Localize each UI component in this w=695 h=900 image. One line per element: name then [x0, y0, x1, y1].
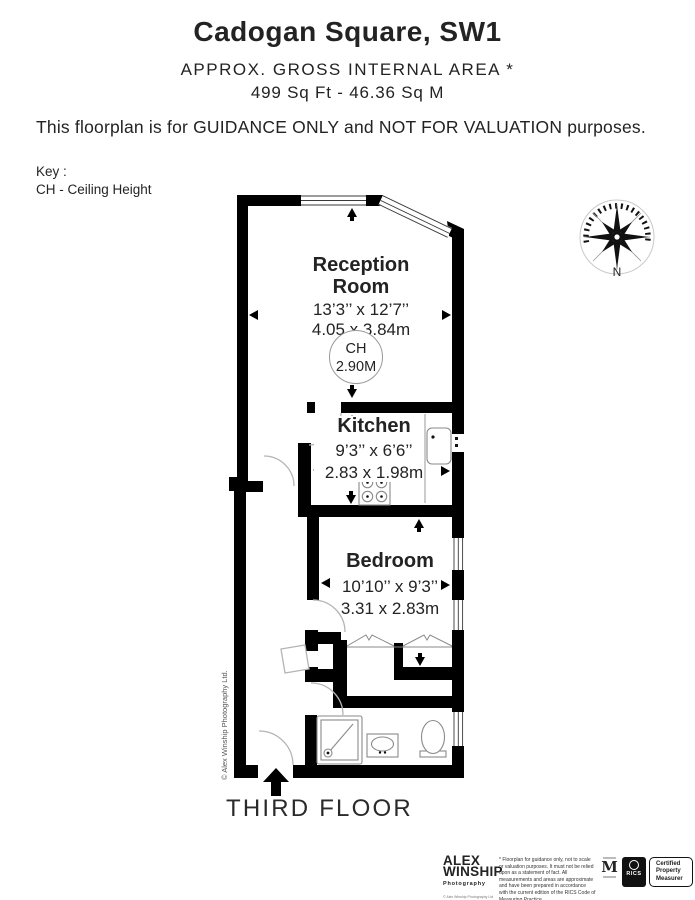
ceiling-height-circle [330, 331, 383, 384]
bedroom-dims-metric: 3.31 x 2.83m [341, 599, 439, 618]
kitchen-name: Kitchen [337, 415, 410, 437]
arrow-bedroom-up [414, 519, 424, 528]
floor-label: THIRD FLOOR [226, 795, 413, 823]
toilet [420, 721, 446, 758]
window-reception-bay [378, 195, 452, 238]
kitchen-dims-metric: 2.83 x 1.98m [325, 463, 423, 482]
footer-disclaimer: * Floorplan for guidance only, not to sc… [499, 857, 596, 900]
wall-kitchen-north [341, 402, 464, 413]
rics-label: RICS [622, 871, 646, 877]
cupboard-door-leaf [281, 645, 309, 673]
wardrobe-center-post [394, 643, 403, 680]
logo-line-2: WINSHIP [443, 866, 499, 877]
ch-value: 2.90M [336, 359, 376, 375]
rics-emblem-icon [629, 860, 639, 870]
cert-line-1: Certified [656, 861, 692, 868]
wall-left-lower [234, 491, 246, 778]
reception-dims-imperial: 13’3’’ x 12’7’’ [313, 300, 409, 319]
bedroom-dims-imperial: 10’10’’ x 9’3’’ [342, 577, 438, 596]
arrow-reception-left [249, 310, 258, 320]
entrance-arrow [263, 768, 289, 796]
wall-kitchen-south [298, 505, 464, 517]
certified-property-measurer-badge: Certified Property Measurer [649, 857, 693, 887]
ch-label: CH [346, 341, 367, 357]
arrow-reception-down [347, 389, 357, 398]
compass-rose: N [580, 200, 654, 279]
basin [367, 734, 398, 757]
window-bedroom-2 [453, 600, 464, 630]
kitchen-sink [427, 428, 451, 464]
wall-bottom [293, 765, 464, 778]
floorplan-drawing: Reception Room 13’3’’ x 12’7’’ 4.05 x 3.… [0, 0, 695, 900]
window-bathroom [453, 712, 464, 746]
window-bedroom-1 [453, 538, 464, 570]
reception-name-2: Room [333, 276, 390, 298]
arrow-reception-up [347, 208, 357, 217]
wall-bathroom-west [305, 715, 317, 778]
medallion-bottom-mark [603, 876, 616, 878]
entrance-door-arc [259, 731, 293, 765]
logo-copyright: © Alex Winship Photography Ltd [443, 892, 499, 900]
wall-bathroom-north [333, 696, 464, 708]
window-kitchen-vent [453, 434, 464, 452]
reception-name-1: Reception [313, 254, 410, 276]
wall-bedroom-south [394, 667, 464, 680]
arrow-bedroom-right [441, 580, 450, 590]
arrow-bedroom-left [321, 578, 330, 588]
rics-badge: RICS [622, 857, 646, 887]
logo-photography: Photography [443, 879, 499, 890]
wall-right-5 [452, 746, 464, 778]
vertical-watermark: © Alex Winship Photography Ltd. [220, 670, 229, 780]
floorplan-page: Cadogan Square, SW1 APPROX. GROSS INTERN… [0, 0, 695, 900]
wall-lobby-4 [313, 669, 347, 682]
wall-left-upper [237, 195, 248, 477]
arrow-kitchen-right [441, 466, 450, 476]
room-labels: Reception Room 13’3’’ x 12’7’’ 4.05 x 3.… [312, 254, 439, 618]
arrow-reception-right [442, 310, 451, 320]
arrow-bedroom-down [415, 657, 425, 666]
wall-bedroom-west [307, 517, 319, 600]
arrow-kitchen-down [346, 495, 356, 504]
wall-kitchen-north-stub [307, 402, 315, 413]
hall-door-arc [264, 456, 294, 486]
wall-hall-door-stub [246, 481, 263, 492]
cert-line-2: Property [656, 868, 692, 875]
wall-right-2 [452, 452, 464, 538]
window-reception-top [301, 195, 366, 206]
wall-bottom-corner [234, 765, 258, 778]
kitchen-dims-imperial: 9’3’’ x 6’6’’ [335, 441, 412, 460]
measurer-medallion: M [601, 856, 618, 879]
cert-line-3: Measurer [656, 876, 692, 883]
alex-winship-logo: ALEX WINSHIP Photography © Alex Winship … [443, 855, 499, 900]
medallion-m: M [601, 860, 618, 875]
wall-right-3 [452, 570, 464, 600]
wall-left-jog [229, 477, 248, 491]
shower [317, 716, 362, 764]
bedroom-name: Bedroom [346, 550, 434, 572]
compass-north-label: N [613, 265, 622, 279]
